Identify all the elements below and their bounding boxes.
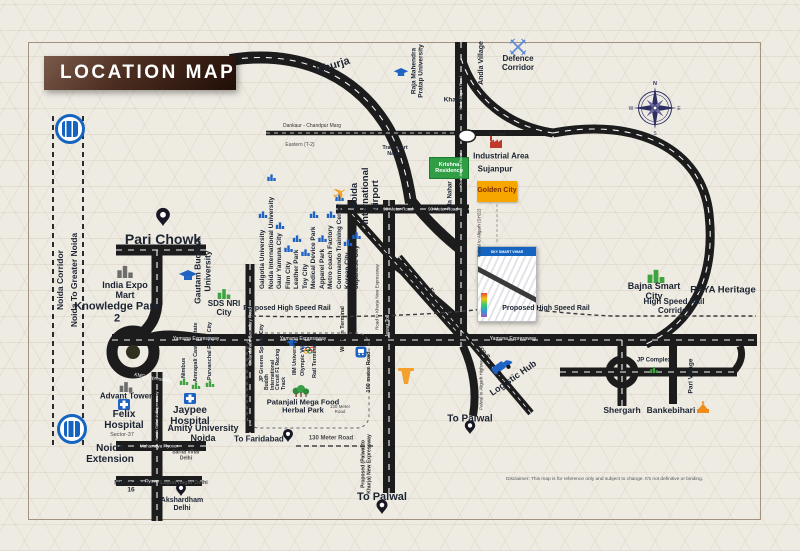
defence-corridor-label: Defence Corridor — [491, 55, 545, 73]
palwal-aligarh-highway-label: Palwal to Aligarh Highway — [478, 358, 483, 410]
pari-chowk-roundabout — [126, 345, 140, 359]
pari-chowk-pin-icon — [156, 208, 170, 226]
jp-complex-label: JP Complex — [633, 358, 675, 365]
khair-aligarh-road-label: Khair Aligarh Road — [459, 76, 463, 109]
palwal-aligarh-sh22-label: Palwal to Aligarh (SH22) — [476, 209, 481, 258]
sds-nri-city-icon — [218, 289, 231, 299]
buddh-circuit-label: Buddh International Circuit F1 Racing Tr… — [265, 344, 287, 390]
hsr-corridor-label: High Speed Rail Corridor — [632, 298, 717, 316]
india-expo-mart-icon — [117, 266, 132, 278]
defence-corridor-swords-icon — [510, 39, 526, 55]
flyover-label: Flyover — [145, 478, 160, 483]
poi-metro-coach-label: Metro coach Factory — [327, 225, 334, 289]
amrapali-label: Amrapali Castle Estate — [193, 322, 199, 382]
purvanchal-icon — [206, 380, 214, 387]
western-terminal-label: Western Terminal — [340, 306, 346, 352]
noida-extension-label: Noida Extension — [74, 443, 146, 465]
disclaimer-text: Disclaimer: This map is for reference on… — [506, 477, 703, 482]
transport-hub-icon — [356, 347, 367, 358]
poi-icon — [318, 235, 326, 242]
compass-rose-icon: N E S W — [629, 81, 682, 137]
poi-japanese-city-label: Japanese City — [353, 245, 360, 289]
to-faridabad-label: To Faridabad — [234, 436, 284, 445]
andla-village-label: Andla Village — [478, 41, 486, 85]
nimbus-icon — [180, 378, 188, 385]
dankaur-chandpur-marg-label: Dankaur - Chandpur Marg — [283, 124, 341, 130]
ninety-meter-road-label: 90 Meter Road — [383, 206, 413, 211]
poi-apparel-park-label: Apparel Park — [319, 249, 326, 289]
golden-city-box: Golden City — [477, 181, 517, 202]
compass-s: S — [653, 131, 657, 137]
poi-medical-device-park-label: Medical Device Park — [310, 226, 317, 289]
airport-label: Noida International Airport — [350, 166, 382, 226]
shergarh-label: Shergarh — [603, 406, 640, 416]
yamuna-expressway-label: Yamuna Expressway — [490, 337, 537, 343]
metro-train-icon — [57, 414, 87, 444]
compass-w: W — [629, 106, 634, 112]
industrial-area-label: Industrial Area — [472, 153, 530, 162]
one-thirty-meter-road-label: 130 Meter Road — [309, 436, 353, 443]
poi-icon — [259, 211, 267, 218]
pari-village-label: Pari Village — [687, 359, 694, 394]
sujanpur-label: Sujanpur — [478, 166, 513, 175]
sarita-vihar-label: Sarita Vihar Delhi — [167, 450, 205, 461]
poi-icon — [267, 174, 275, 181]
title-banner: LOCATION MAP — [44, 56, 236, 90]
poi-icon — [293, 235, 301, 242]
compass-e: E — [677, 106, 681, 112]
mahamaya-flyover-label: Mahamaya Flyover — [140, 443, 178, 448]
poi-korean-city-label: Korean City — [344, 253, 351, 289]
bankebihari-temple-icon — [697, 401, 709, 413]
akshardham-label: Akshardham Delhi — [158, 497, 206, 513]
poi-icon — [284, 245, 292, 252]
felix-hospital-label: Felix Hospital — [94, 409, 154, 431]
advant-tower-label: Advant Tower — [100, 393, 152, 402]
hundred-meter-road-label: 100 meter Road — [366, 352, 372, 393]
proposed-hsr-label: Proposed High Speed Rail — [502, 305, 590, 313]
sector-37-label: Sector-37 — [110, 432, 134, 438]
poi-gaur-yamuna-label: Gaur Yamuna City — [276, 233, 283, 289]
knowledge-park-2-label: Knowledge Park 2 — [71, 301, 163, 326]
poi-niu-label: Noida International University — [268, 197, 275, 289]
raya-heritage-label: RAYA Heritage — [690, 286, 755, 297]
poi-icon — [310, 211, 318, 218]
raja-mahendra-university-icon — [394, 68, 408, 76]
bulandshahr-boundary-road-label: Bulandshahr Boundary Road — [247, 307, 252, 365]
road-to-khurja-label: Road to Khurja New Expressway — [374, 264, 379, 330]
poi-film-city-label: Film City — [285, 262, 292, 289]
proposed-hsr-label: Proposed High Speed Rail — [243, 305, 331, 313]
poi-galgotia-label: Galgotia University — [259, 230, 266, 289]
to-faridabad-pin-icon — [283, 429, 293, 442]
golden-city-label: Golden City — [477, 187, 516, 195]
eastern-t2-label: Eastern (T-2) — [285, 143, 314, 149]
iim-university-label: IIM University — [292, 339, 298, 375]
purvanchal-label: Purvanchal Royal City — [207, 322, 213, 380]
patanjali-trees-icon — [293, 385, 310, 397]
proposed-palwal-khurja-label: Proposed (Palwal to Khurja) New Expressw… — [361, 433, 372, 495]
page-title: LOCATION MAP — [60, 62, 235, 84]
sds-nri-city-label: SDS NRI City — [200, 300, 248, 318]
amrapali-icon — [192, 382, 200, 389]
ninety-meter-road-label: 90 Meter Road — [428, 206, 458, 211]
jewar-toll-label: Jewar Toll — [386, 315, 392, 337]
noida-corridor-label: Noida Corridor — [56, 250, 66, 310]
transport-nagar-label: Transport Nagar — [374, 145, 416, 157]
lajpat-nagar-label: Lajpat nagar Delhi — [159, 480, 209, 486]
poi-icon — [276, 222, 284, 229]
india-expo-mart-label: India Expo Mart — [93, 280, 157, 300]
metro-train-icon — [55, 114, 85, 144]
one-thirty-meter-road-label: 130 Meter Road — [327, 404, 353, 414]
khair-roundabout — [459, 130, 476, 142]
poi-icon — [301, 249, 309, 256]
industrial-area-icon — [490, 136, 502, 148]
raja-mahendra-university-label: Raja Mahendra Pratap University — [411, 40, 426, 102]
bankebihari-label: Bankebihari — [647, 406, 696, 416]
poi-commando-label: Commando Training Center — [336, 204, 343, 289]
advant-tower-icon — [120, 382, 133, 392]
site-plan-title: SKY SMART VIHAR — [478, 247, 536, 256]
poi-toy-city-label: Toy City — [302, 264, 309, 289]
location-map: ✈ N E S W LOCATION MAP Krishna Residency… — [0, 0, 800, 551]
khair-aligarh-road-label: Khair Aligarh Road — [459, 153, 463, 186]
pari-chowk-label: Pari Chowk — [125, 232, 201, 248]
noida-gnoida-expressway-label: Noida G.Noida Expressway — [155, 392, 159, 441]
poi-leather-park-label: Leather Park — [293, 250, 300, 289]
jaypee-hospital-icon — [184, 393, 196, 404]
poi-icon — [327, 211, 335, 218]
jewar-toll-gate-icon — [398, 368, 414, 384]
to-palwal-south-label: To Palwal — [357, 491, 407, 503]
yamuna-expressway-label: Yamuna Expressway — [173, 337, 220, 343]
compass-n: N — [653, 81, 657, 87]
yamuna-expressway-label: Yamuna Expressway — [280, 337, 327, 343]
to-palwal-label: To Palwal — [447, 413, 492, 424]
nimbus-label: Nimbus — [181, 358, 187, 378]
to-khair-label: To Khair — [489, 131, 506, 136]
